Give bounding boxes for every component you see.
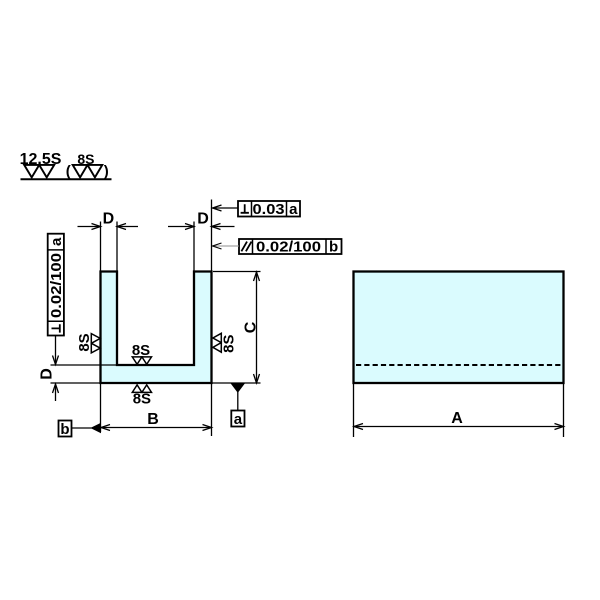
svg-text:D: D <box>197 211 209 228</box>
svg-text:a: a <box>234 411 243 428</box>
svg-text:B: B <box>147 411 159 428</box>
svg-text:(: ( <box>66 163 71 180</box>
svg-text:0.03: 0.03 <box>253 201 285 218</box>
svg-text:0.02/100: 0.02/100 <box>256 239 321 256</box>
svg-text:D: D <box>103 211 115 228</box>
svg-text:b: b <box>60 421 69 438</box>
svg-text:8S: 8S <box>133 391 151 408</box>
svg-text:A: A <box>451 410 463 427</box>
svg-text:b: b <box>329 239 338 256</box>
svg-text:D: D <box>39 368 56 380</box>
svg-text:8S: 8S <box>76 333 93 351</box>
svg-text:a: a <box>48 237 65 246</box>
svg-text:): ) <box>104 163 109 180</box>
svg-text:a: a <box>289 201 298 218</box>
svg-text:C: C <box>243 321 260 333</box>
svg-text:8S: 8S <box>221 335 238 353</box>
svg-text:0.02/100: 0.02/100 <box>48 253 65 318</box>
